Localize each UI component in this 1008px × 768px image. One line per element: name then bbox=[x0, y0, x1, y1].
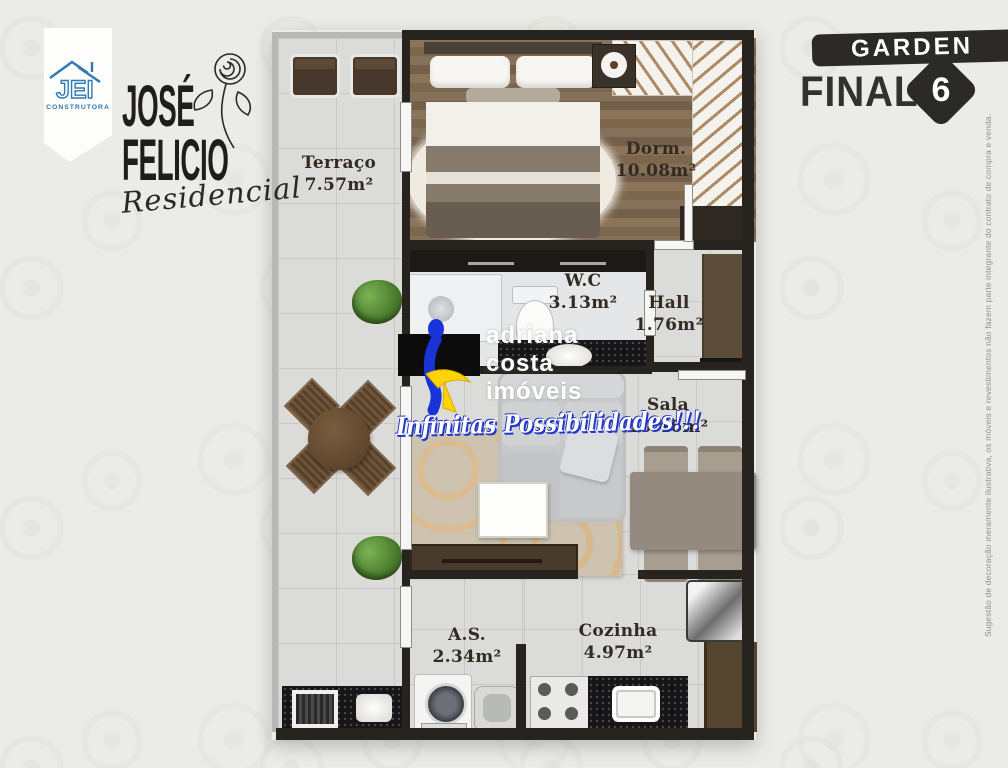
bed-headboard bbox=[424, 42, 602, 54]
room-area: 4.97m² bbox=[556, 642, 680, 664]
wall-top bbox=[402, 30, 754, 40]
builder-tagline: CONSTRUTORA bbox=[44, 104, 112, 111]
bed-pillow-left bbox=[430, 56, 510, 88]
label-hall: Hall 1.76m² bbox=[608, 292, 730, 337]
watermark-line2: costa bbox=[486, 350, 554, 378]
watermark-slogan: Infinitas Possibilidades!!! bbox=[396, 407, 617, 441]
terrace-wall-top bbox=[272, 32, 406, 38]
coffee-table bbox=[478, 482, 548, 538]
tank-basin bbox=[483, 694, 511, 722]
tv-rack-handle bbox=[442, 559, 542, 563]
dresser-handle bbox=[468, 262, 514, 265]
bed-pillow-right bbox=[516, 56, 596, 88]
armchair-back bbox=[295, 59, 335, 69]
bed bbox=[424, 42, 602, 238]
label-cozinha: Cozinha 4.97m² bbox=[556, 620, 680, 665]
entry-door-leaf bbox=[678, 370, 746, 380]
washer-door bbox=[425, 683, 467, 725]
kitchen-sink bbox=[612, 686, 660, 722]
living-terrace-door bbox=[400, 386, 412, 550]
bbq-sink bbox=[356, 694, 392, 722]
wall-bottom bbox=[276, 728, 754, 740]
badge-collection: GARDEN bbox=[851, 32, 974, 63]
watermark-line3: imóveis bbox=[486, 378, 582, 406]
badge-final: FINAL bbox=[800, 68, 918, 117]
room-name: Cozinha bbox=[556, 620, 680, 642]
label-as: A.S. 2.34m² bbox=[406, 624, 528, 669]
dresser bbox=[410, 250, 648, 272]
burner bbox=[565, 683, 578, 696]
bed-blanket-foot bbox=[426, 202, 600, 238]
builder-ribbon: JEI CONSTRUTORA bbox=[44, 28, 112, 162]
armchair-back bbox=[355, 59, 395, 69]
bed-sheet bbox=[426, 102, 600, 150]
wall-living-kitchen-right bbox=[638, 570, 754, 579]
jei-logo-icon: JEI bbox=[48, 58, 108, 102]
jei-logo-text: JEI bbox=[56, 76, 94, 102]
nightstand bbox=[592, 44, 636, 88]
wall-bedroom-hall bbox=[694, 240, 742, 250]
room-name: A.S. bbox=[406, 624, 528, 646]
burner bbox=[538, 683, 551, 696]
bedroom-door-leaf bbox=[684, 184, 693, 242]
garden-banner: GARDEN bbox=[812, 29, 1008, 66]
label-dorm: Dorm. 10.08m² bbox=[594, 138, 718, 183]
badge-number: 6 bbox=[932, 70, 951, 109]
nightstand-lamp-center bbox=[610, 61, 618, 69]
closet-right bbox=[692, 40, 746, 212]
room-area: 1.76m² bbox=[608, 314, 730, 336]
bed-blanket-stripe bbox=[426, 172, 600, 184]
room-area: 2.34m² bbox=[406, 646, 528, 668]
room-name: Dorm. bbox=[594, 138, 718, 160]
disclaimer-text: Sugestão de decoração meramente ilustrat… bbox=[983, 117, 993, 637]
wall-living-kitchen-left bbox=[406, 570, 578, 579]
wall-right bbox=[742, 30, 754, 740]
room-name: W.C bbox=[522, 270, 644, 292]
dining-table bbox=[630, 472, 756, 550]
washing-machine bbox=[414, 674, 472, 734]
watermark-line1: adriana bbox=[486, 322, 578, 350]
wall-bedroom-wc bbox=[406, 240, 654, 250]
adriana-costa-logo-icon bbox=[412, 318, 482, 422]
bedroom-terrace-door bbox=[400, 102, 412, 172]
burner bbox=[538, 707, 551, 720]
floorplan-poster: Terraço 7.57m² Dorm. 10.08m² W.C 3.13m² … bbox=[0, 0, 1008, 768]
room-name: Hall bbox=[608, 292, 730, 314]
bbq-grill bbox=[292, 690, 338, 728]
burner bbox=[565, 707, 578, 720]
terrace-table bbox=[308, 408, 370, 470]
room-area: 10.08m² bbox=[594, 160, 718, 182]
stove bbox=[530, 676, 590, 730]
rose-sketch-icon bbox=[190, 50, 254, 150]
terrace-armchair bbox=[350, 54, 400, 98]
dresser-handle bbox=[560, 262, 606, 265]
laundry-tank bbox=[474, 686, 520, 732]
